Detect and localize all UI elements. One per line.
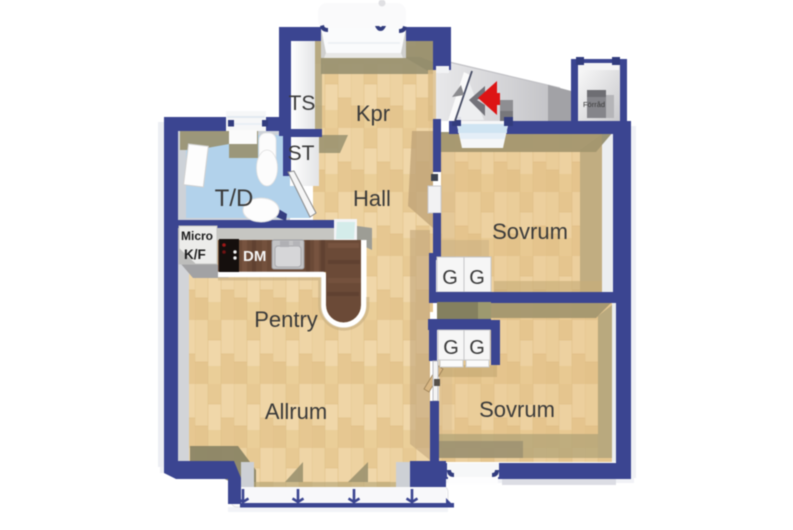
svg-text:Allrum: Allrum <box>265 399 327 424</box>
svg-text:TS: TS <box>289 92 316 115</box>
svg-text:Pentry: Pentry <box>254 307 318 332</box>
svg-text:G: G <box>443 337 459 359</box>
svg-text:Hall: Hall <box>353 186 391 211</box>
svg-text:T/D: T/D <box>215 185 254 212</box>
svg-text:Kpr: Kpr <box>356 101 390 126</box>
svg-text:G: G <box>442 267 458 289</box>
svg-text:DM: DM <box>243 248 266 265</box>
svg-text:ST: ST <box>288 142 315 165</box>
svg-text:G: G <box>469 267 485 289</box>
svg-text:G: G <box>469 337 485 359</box>
svg-text:Förråd: Förråd <box>583 100 605 109</box>
svg-text:Sovrum: Sovrum <box>479 397 555 422</box>
svg-text:Micro: Micro <box>181 229 213 243</box>
svg-text:Sovrum: Sovrum <box>492 219 568 244</box>
svg-text:K/F: K/F <box>184 247 206 262</box>
